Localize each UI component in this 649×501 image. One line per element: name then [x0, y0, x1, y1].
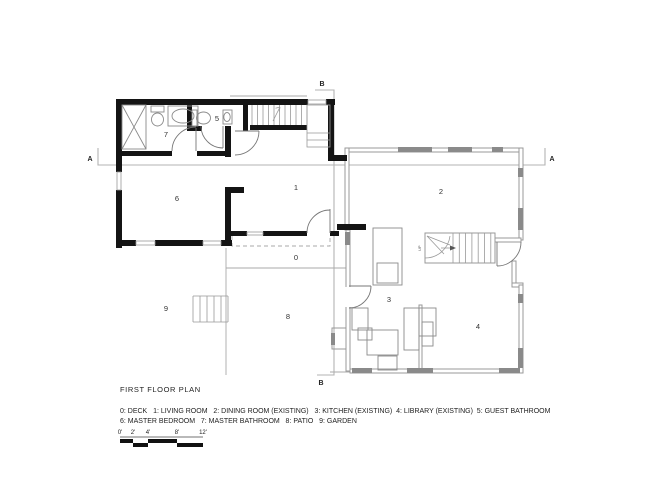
scale-bar: 0' 2' 4' 8' 12' [118, 430, 207, 447]
room-label-dining-room: 2 [439, 187, 443, 196]
room-label-kitchen: 3 [387, 295, 391, 304]
room-label-library: 4 [476, 322, 480, 331]
scale-label-0: 0' [118, 430, 122, 436]
drawing-title: FIRST FLOOR PLAN [120, 385, 201, 394]
legend: 0: DECK 1: LIVING ROOM 2: DINING ROOM (E… [120, 408, 551, 425]
deck-door [307, 209, 330, 233]
bathroom-fixtures [122, 105, 232, 149]
room-label-master-bathroom: 7 [164, 130, 168, 139]
toilet-guest [192, 110, 211, 126]
new-wall-windows [117, 100, 326, 245]
scale-label-4: 4' [146, 430, 150, 436]
room-label-deck: 0 [294, 253, 298, 262]
section-label-a-left: A [87, 156, 92, 163]
scale-label-2: 2' [131, 430, 135, 436]
new-walls [116, 99, 366, 248]
scale-label-12: 12' [199, 430, 207, 436]
kitchen-fixtures [352, 228, 436, 370]
shower [122, 105, 146, 149]
floor-plan-page: UP 0 [0, 0, 649, 501]
section-label-b-top: B [319, 81, 324, 88]
sink-master [168, 106, 198, 126]
section-label-b-bottom: B [318, 380, 323, 387]
kitchen-door [349, 286, 371, 308]
room-label-guest-bathroom: 5 [215, 114, 219, 123]
stair-up-note: UP [417, 245, 422, 251]
garden-steps [193, 296, 228, 322]
legend-line-2: 6: MASTER BEDROOM 7: MASTER BATHROOM 8: … [120, 418, 357, 425]
floor-plan-canvas: UP 0 [0, 0, 649, 501]
room-label-patio: 8 [286, 312, 290, 321]
toilet-master [151, 106, 164, 126]
existing-stairs: UP [417, 233, 495, 263]
hall-door [235, 131, 259, 155]
sink-guest [223, 110, 232, 124]
scale-label-8: 8' [175, 430, 179, 436]
room-label-garden: 9 [164, 304, 168, 313]
library-door [497, 242, 521, 266]
room-labels: 0 1 2 3 4 5 6 7 8 9 [164, 114, 480, 331]
kitchen-door-opening [345, 287, 351, 307]
section-label-a-right: A [549, 156, 554, 163]
kitchen-counter [352, 308, 368, 330]
legend-line-1: 0: DECK 1: LIVING ROOM 2: DINING ROOM (E… [120, 408, 551, 415]
room-label-living-room: 1 [294, 183, 298, 192]
deck-dashed-outline [232, 236, 330, 246]
room-label-master-bedroom: 6 [175, 194, 179, 203]
guest-bathroom-door [201, 126, 223, 148]
